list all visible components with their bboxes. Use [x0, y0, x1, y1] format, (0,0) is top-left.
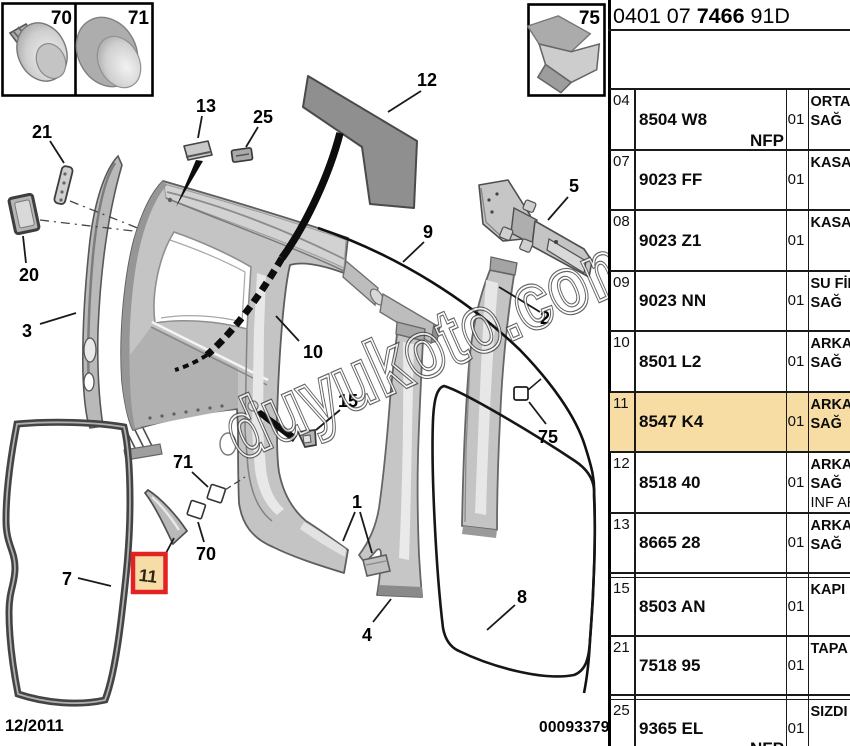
- svg-text:1: 1: [352, 492, 362, 512]
- svg-text:9: 9: [423, 222, 433, 242]
- svg-text:00093379: 00093379: [539, 719, 610, 736]
- svg-text:7: 7: [62, 569, 72, 589]
- svg-text:75: 75: [538, 427, 558, 447]
- svg-text:12: 12: [417, 70, 437, 90]
- svg-text:13: 13: [196, 96, 216, 116]
- svg-text:70: 70: [196, 544, 216, 564]
- svg-text:5: 5: [569, 176, 579, 196]
- svg-text:20: 20: [19, 265, 39, 285]
- svg-text:12/2011: 12/2011: [5, 717, 64, 735]
- svg-text:4: 4: [362, 625, 372, 645]
- svg-text:25: 25: [253, 107, 273, 127]
- svg-text:11: 11: [138, 565, 159, 587]
- svg-text:21: 21: [32, 122, 52, 142]
- svg-text:71: 71: [128, 8, 150, 29]
- svg-text:71: 71: [173, 452, 193, 472]
- svg-text:3: 3: [22, 321, 32, 341]
- svg-text:70: 70: [51, 8, 72, 29]
- svg-text:75: 75: [579, 8, 601, 29]
- svg-text:8: 8: [517, 587, 527, 607]
